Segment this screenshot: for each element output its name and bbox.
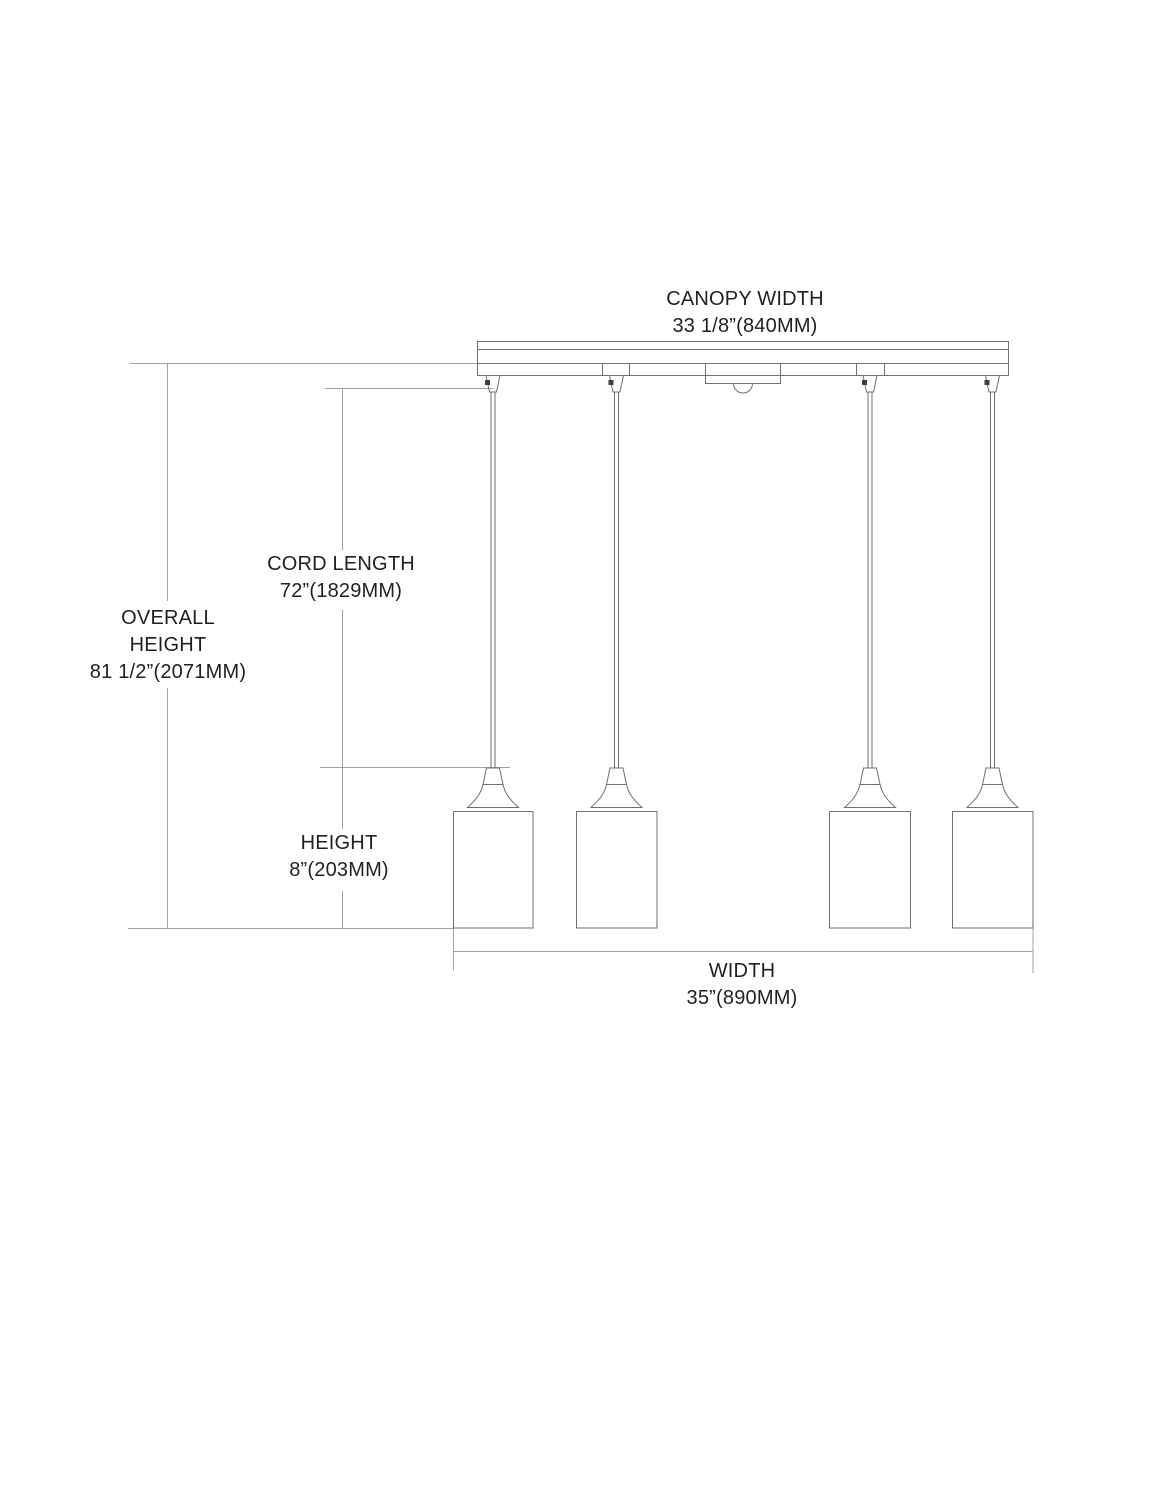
socket-neck-4 [983, 768, 1003, 785]
overall-height-value: 81 1/2”(2071MM) [90, 659, 246, 686]
cord-grip-screw-1 [485, 380, 490, 385]
shade-cylinder-4 [953, 812, 1034, 929]
canopy [478, 342, 1009, 394]
pendant-2 [577, 376, 658, 929]
dimension-diagram: CANOPY WIDTH 33 1/8”(840MM) CORD LENGTH … [0, 0, 1159, 1500]
socket-neck-2 [607, 768, 627, 785]
canopy-width-label: CANOPY WIDTH 33 1/8”(840MM) [666, 286, 824, 340]
shade-cylinder-3 [830, 812, 911, 929]
socket-neck-1 [483, 768, 503, 785]
width-value: 35”(890MM) [687, 985, 798, 1012]
cord-grip-screw-2 [609, 380, 614, 385]
canopy-bar [478, 342, 1009, 376]
cord-length-label: CORD LENGTH 72”(1829MM) [267, 551, 415, 605]
canopy-center-knob [734, 384, 753, 394]
socket-bell-2 [591, 785, 642, 808]
height-label: HEIGHT 8”(203MM) [289, 830, 389, 884]
width-title: WIDTH [687, 958, 798, 985]
fixture-line-drawing [0, 0, 1159, 1500]
cord-grip-screw-3 [862, 380, 867, 385]
overall-height-title-line2: HEIGHT [90, 632, 246, 659]
cord-length-value: 72”(1829MM) [267, 578, 415, 605]
pendant-4 [953, 376, 1034, 929]
overall-height-label: OVERALL HEIGHT 81 1/2”(2071MM) [90, 605, 246, 686]
canopy-mount-block-2 [603, 364, 630, 376]
shade-cylinder-1 [454, 812, 534, 929]
height-value: 8”(203MM) [289, 857, 389, 884]
canopy-mount-block-3 [857, 364, 885, 376]
pendant-1 [454, 376, 534, 929]
cord-length-title: CORD LENGTH [267, 551, 415, 578]
socket-bell-3 [845, 785, 896, 808]
width-label: WIDTH 35”(890MM) [687, 958, 798, 1012]
canopy-width-value: 33 1/8”(840MM) [666, 313, 824, 340]
overall-height-title-line1: OVERALL [90, 605, 246, 632]
canopy-center-mount [706, 364, 781, 384]
canopy-width-title: CANOPY WIDTH [666, 286, 824, 313]
socket-bell-4 [967, 785, 1018, 808]
shade-cylinder-2 [577, 812, 658, 929]
dimension-lines [128, 364, 1033, 974]
socket-bell-1 [468, 785, 519, 808]
height-title: HEIGHT [289, 830, 389, 857]
pendant-3 [830, 376, 911, 929]
socket-neck-3 [860, 768, 880, 785]
cord-grip-screw-4 [985, 380, 990, 385]
